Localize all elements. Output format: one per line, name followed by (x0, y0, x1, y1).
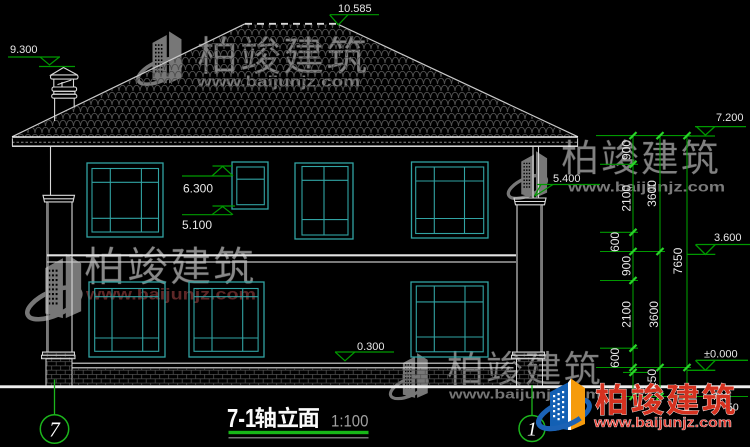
svg-text:±0.000: ±0.000 (704, 349, 738, 361)
svg-text:3600: 3600 (647, 301, 661, 328)
svg-text:7.200: 7.200 (716, 112, 744, 124)
svg-text:2100: 2100 (620, 301, 634, 328)
svg-text:5.400: 5.400 (553, 173, 581, 185)
svg-text:1: 1 (527, 419, 537, 441)
svg-text:7650: 7650 (671, 247, 685, 274)
svg-text:3600: 3600 (645, 180, 659, 207)
svg-text:900: 900 (620, 256, 634, 276)
svg-text:2100: 2100 (620, 185, 634, 212)
svg-text:600: 600 (608, 347, 622, 367)
svg-text:0.300: 0.300 (357, 341, 385, 353)
svg-text:600: 600 (608, 232, 622, 252)
svg-text:3.600: 3.600 (714, 232, 742, 244)
svg-text:6.300: 6.300 (183, 182, 213, 196)
svg-text:7-1: 7-1 (227, 404, 256, 433)
svg-text:900: 900 (620, 140, 634, 160)
svg-text:5.100: 5.100 (182, 218, 212, 232)
svg-text:www.baijunjz.com: www.baijunjz.com (593, 415, 732, 430)
svg-text:10.585: 10.585 (338, 3, 372, 15)
svg-text:9.300: 9.300 (10, 44, 38, 56)
svg-text:7: 7 (49, 418, 61, 442)
svg-text:1:100: 1:100 (331, 413, 369, 431)
